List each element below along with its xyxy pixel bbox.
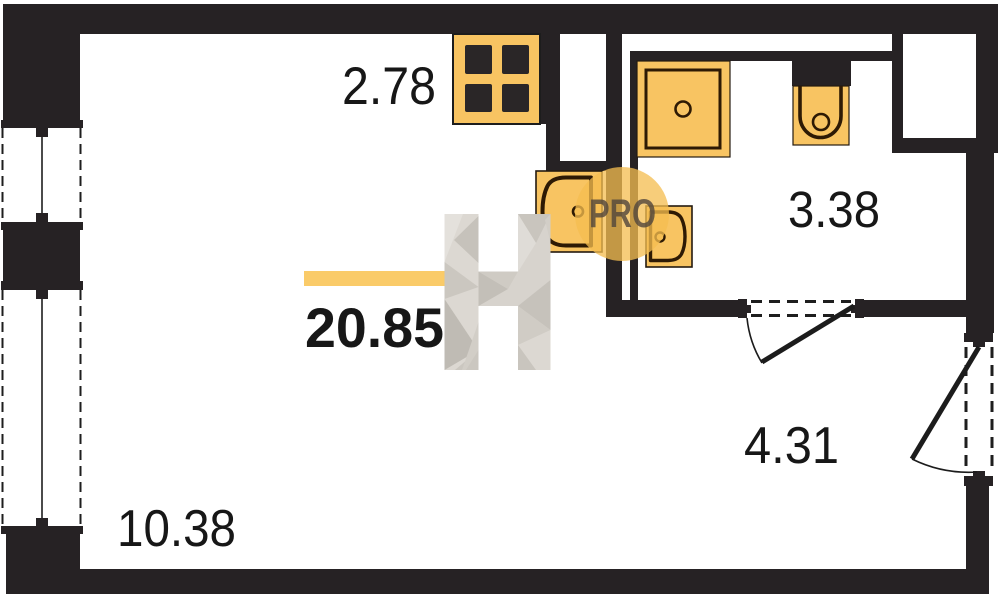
svg-text:3.38: 3.38 [788,181,880,238]
svg-text:2.78: 2.78 [342,57,436,116]
svg-text:10.38: 10.38 [117,500,236,558]
svg-text:PRO: PRO [589,192,656,236]
svg-text:20.85: 20.85 [305,296,444,359]
svg-text:4.31: 4.31 [744,417,839,475]
